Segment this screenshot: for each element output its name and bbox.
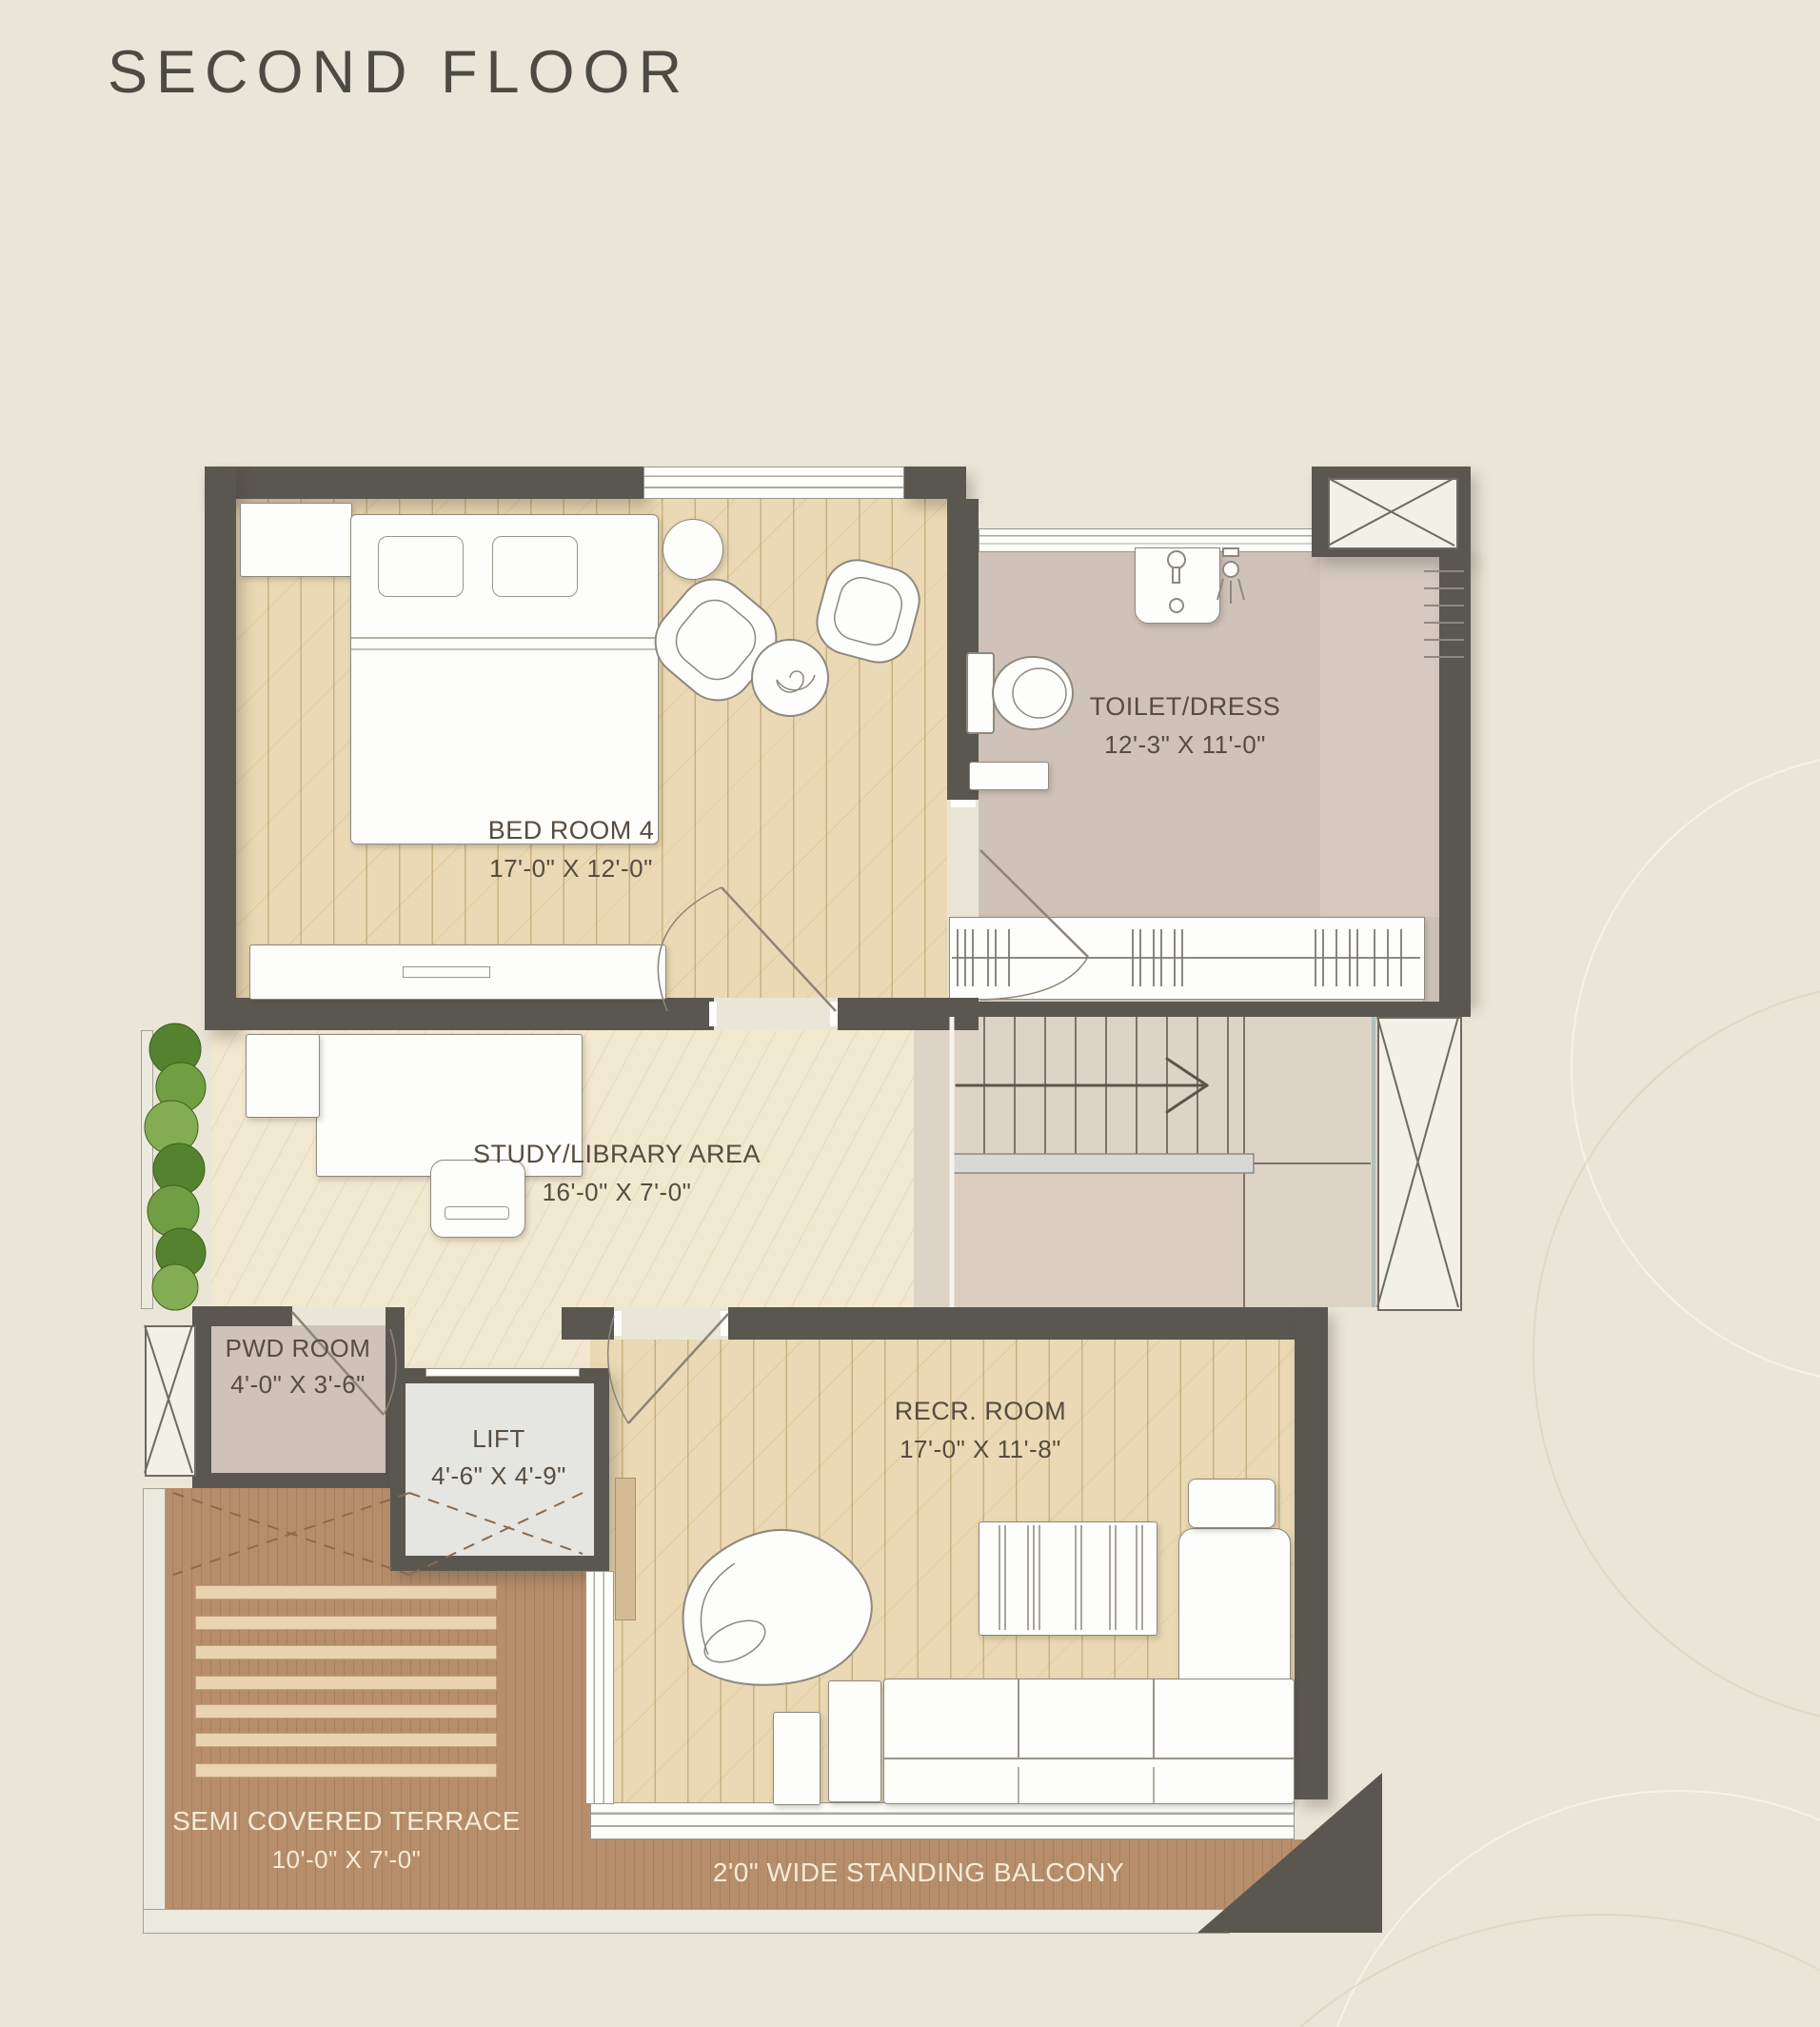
toilet-bottom-wall (914, 1002, 1471, 1017)
lobby-floor (386, 1307, 590, 1368)
bedroom-left-wall (205, 467, 236, 1030)
stair-bottom-wall (914, 1307, 1295, 1340)
room-dims: 4'-6" X 4'-9" (431, 1458, 566, 1495)
recreation-side-cabinet (615, 1478, 636, 1620)
blanket-line (351, 648, 658, 650)
bedroom-bottom-wall (205, 998, 714, 1030)
room-dims: 12'-3" X 11'-0" (1090, 726, 1281, 764)
room-name: LIFT (431, 1421, 566, 1458)
lift-door (425, 1368, 580, 1377)
recreation-top-wall (728, 1307, 914, 1340)
room-name: 2'0" WIDE STANDING BALCONY (713, 1853, 1124, 1893)
stair-lower-landing (952, 1173, 1244, 1307)
sofa-divider (1018, 1767, 1019, 1803)
door-jamb (830, 1002, 838, 1026)
dress-wardrobe (949, 917, 1425, 1000)
door-jamb (709, 1002, 717, 1026)
pergola-slat (195, 1645, 497, 1659)
duct-top-right (1328, 478, 1458, 549)
bedroom-toilet-wall (947, 499, 979, 800)
room-dims: 17'-0" X 12'-0" (488, 850, 655, 887)
room-dims: 10'-0" X 7'-0" (172, 1841, 521, 1878)
pwd-label: PWD ROOM 4'-0" X 3'-6" (217, 1331, 379, 1402)
room-name: STUDY/LIBRARY AREA (473, 1135, 761, 1174)
toilet-right-wall (1439, 550, 1471, 1002)
pergola-slat (195, 1585, 497, 1600)
recreation-top-wall (562, 1307, 614, 1340)
page-title: SECOND FLOOR (108, 38, 690, 107)
duct-stairs (1377, 1017, 1462, 1311)
bedroom-wardrobe (240, 503, 352, 577)
study-label: STUDY/LIBRARY AREA 16'-0" X 7'-0" (473, 1135, 761, 1211)
pergola-slat (195, 1676, 497, 1690)
pwd-bottom-wall (192, 1473, 405, 1488)
pillow (492, 536, 578, 597)
floor-plan: SECOND FLOOR (0, 0, 1820, 2027)
bedside-table (663, 519, 723, 580)
room-name: RECR. ROOM (895, 1392, 1067, 1431)
sofa-side-table (828, 1680, 881, 1802)
recreation-right-wall (1295, 1307, 1328, 1799)
room-dims: 4'-0" X 3'-6" (217, 1367, 379, 1403)
pergola-slat (195, 1616, 497, 1630)
room-name: TOILET/DRESS (1090, 687, 1281, 726)
toilet-label: TOILET/DRESS 12'-3" X 11'-0" (1090, 687, 1281, 764)
planter-rail (141, 1030, 153, 1309)
toilet-vanity (1135, 547, 1220, 624)
balcony-label: 2'0" WIDE STANDING BALCONY (713, 1853, 1124, 1893)
room-name: BED ROOM 4 (488, 811, 655, 850)
study-desk-return (246, 1034, 320, 1118)
bedroom-dresser (249, 944, 666, 1000)
toilet-shelf (969, 762, 1049, 790)
room-dims: 16'-0" X 7'-0" (473, 1174, 761, 1211)
duct-left (145, 1325, 196, 1477)
terrace-label: SEMI COVERED TERRACE 10'-0" X 7'-0" (172, 1801, 521, 1878)
door-jamb (614, 1311, 622, 1336)
recreation-label: RECR. ROOM 17'-0" X 11'-8" (895, 1392, 1067, 1468)
door-jamb (951, 954, 976, 962)
sofa-divider (1018, 1679, 1019, 1758)
bedroom-label: BED ROOM 4 17'-0" X 12'-0" (488, 811, 655, 887)
pillow (378, 536, 464, 597)
bedroom-window (643, 467, 904, 499)
terrace-rail (143, 1488, 166, 1934)
pergola-slat (195, 1763, 497, 1778)
tv-console (979, 1521, 1157, 1636)
room-dims: 17'-0" X 11'-8" (895, 1431, 1067, 1468)
door-jamb (721, 1311, 728, 1336)
pergola-slat (195, 1733, 497, 1747)
coffee-table (773, 1712, 821, 1805)
lift-label: LIFT 4'-6" X 4'-9" (431, 1421, 566, 1495)
background-arc (1142, 1914, 1820, 2027)
dresser-handle (403, 966, 490, 978)
pergola-slat (195, 1704, 497, 1719)
bed (350, 514, 659, 845)
chaise-headrest (1188, 1479, 1276, 1528)
bedroom-top-wall (205, 467, 643, 499)
terrace-recreation-window (585, 1571, 614, 1804)
room-name: PWD ROOM (217, 1331, 379, 1367)
room-name: SEMI COVERED TERRACE (172, 1801, 521, 1841)
sofa-back-line (884, 1758, 1294, 1759)
sofa-divider (1153, 1767, 1155, 1803)
sofa (883, 1679, 1295, 1804)
sofa-divider (1153, 1679, 1155, 1758)
blanket-line (351, 637, 658, 639)
planter-plants (145, 1023, 206, 1310)
bedroom-top-wall (902, 467, 966, 499)
door-jamb (951, 800, 976, 807)
recreation-balcony-window (590, 1802, 1295, 1839)
toilet-floor-strip (1423, 917, 1439, 1002)
balcony-rail (143, 1909, 1230, 1934)
shower-floor (1320, 550, 1439, 917)
